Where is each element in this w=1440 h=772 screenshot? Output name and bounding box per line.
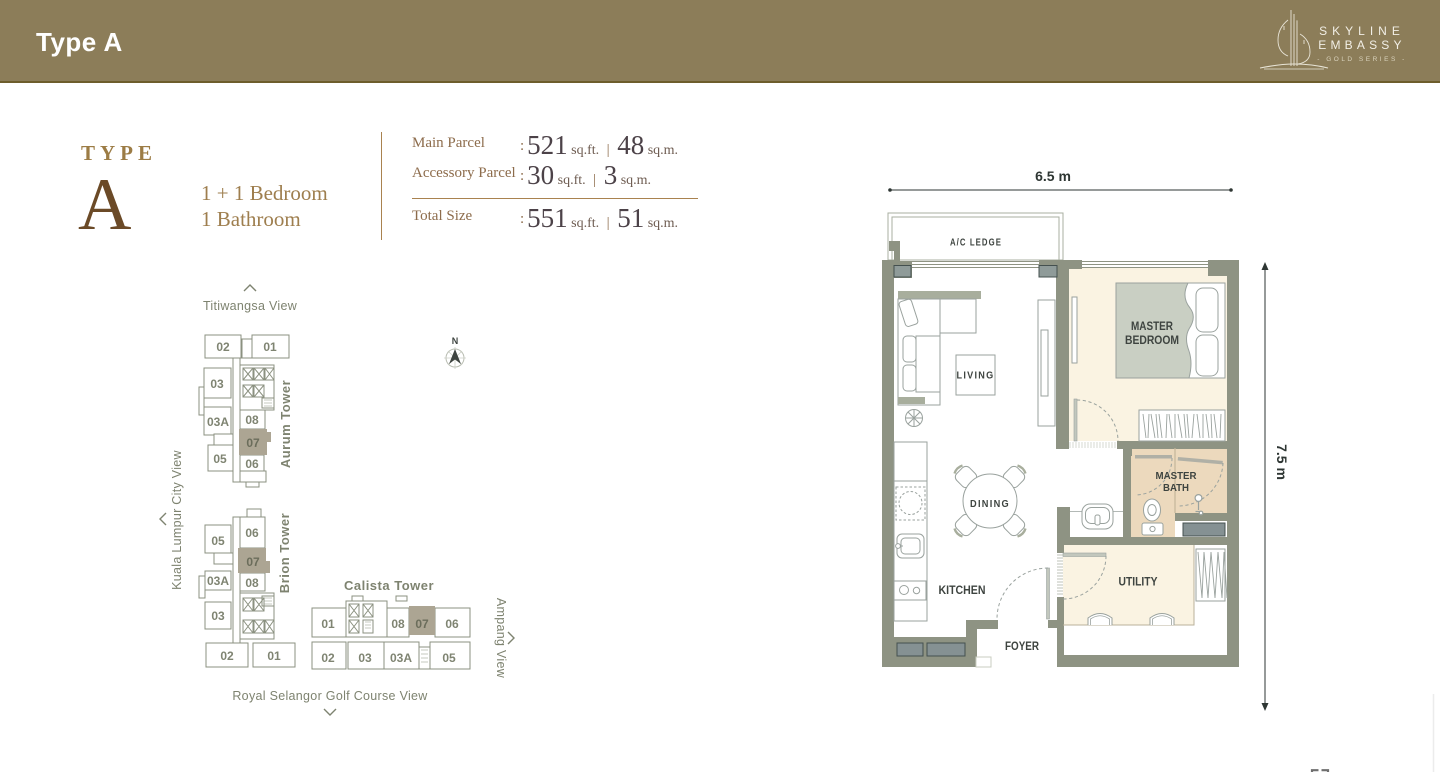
svg-text:LIVING: LIVING	[957, 371, 995, 382]
svg-text:FOYER: FOYER	[1005, 641, 1040, 653]
svg-text:6.5 m: 6.5 m	[1035, 168, 1071, 184]
svg-text:KITCHEN: KITCHEN	[939, 583, 986, 597]
svg-text:DINING: DINING	[970, 499, 1010, 510]
svg-text:7.5 m: 7.5 m	[1274, 444, 1290, 480]
svg-text:UTILITY: UTILITY	[1119, 577, 1158, 589]
svg-text:MASTER: MASTER	[1131, 321, 1174, 333]
svg-text:BEDROOM: BEDROOM	[1125, 335, 1179, 347]
svg-text:MASTER: MASTER	[1156, 471, 1198, 482]
svg-text:BATH: BATH	[1163, 483, 1189, 494]
svg-text:A/C LEDGE: A/C LEDGE	[950, 238, 1002, 249]
